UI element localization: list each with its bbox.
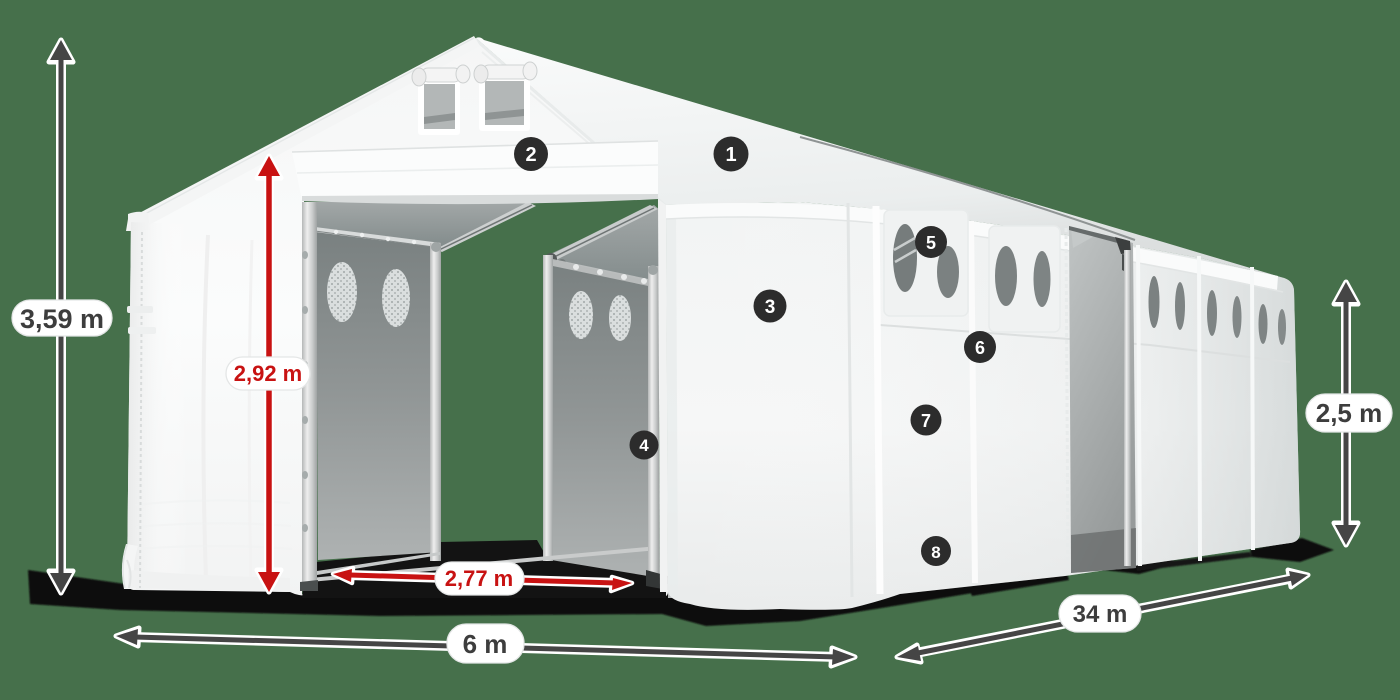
svg-text:7: 7 xyxy=(921,411,931,431)
svg-text:2,92 m: 2,92 m xyxy=(234,361,303,386)
svg-text:3,59 m: 3,59 m xyxy=(20,304,104,334)
svg-text:5: 5 xyxy=(926,233,936,253)
svg-text:3: 3 xyxy=(765,297,776,318)
svg-text:2: 2 xyxy=(525,144,536,166)
svg-text:34 m: 34 m xyxy=(1073,601,1128,628)
svg-text:6: 6 xyxy=(975,338,985,358)
svg-text:8: 8 xyxy=(931,543,940,562)
svg-text:1: 1 xyxy=(725,144,736,166)
svg-text:4: 4 xyxy=(639,436,649,455)
svg-text:2,77 m: 2,77 m xyxy=(445,566,514,591)
svg-text:6 m: 6 m xyxy=(463,629,508,659)
svg-text:2,5 m: 2,5 m xyxy=(1316,398,1383,428)
